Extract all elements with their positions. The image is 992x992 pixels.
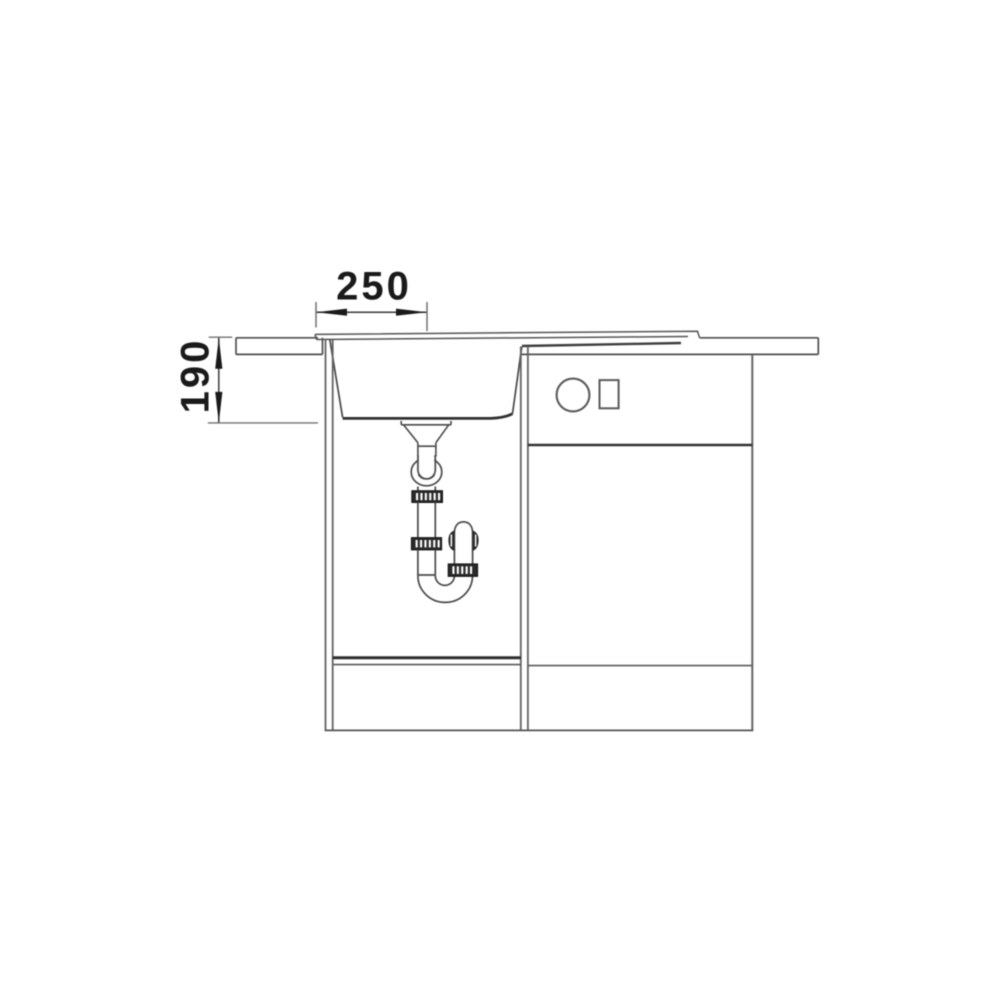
svg-text:250: 250: [336, 265, 412, 309]
svg-text:190: 190: [174, 338, 218, 414]
